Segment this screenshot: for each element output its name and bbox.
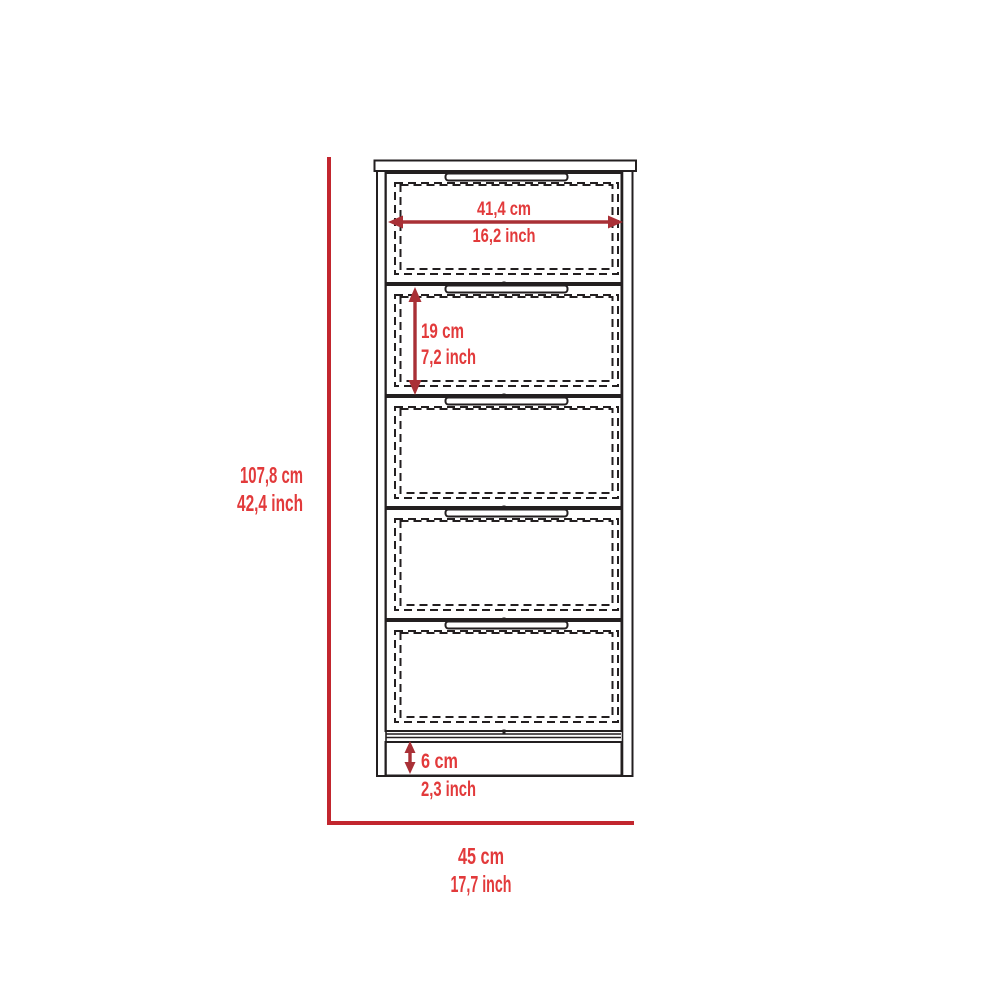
drawer-width-inch-label: 16,2 inch	[473, 226, 536, 247]
drawer-1-handle	[446, 174, 568, 181]
cabinet-top-board	[375, 161, 637, 172]
drawer-4-dashed-inner	[401, 521, 613, 605]
drawer-5-handle	[446, 622, 568, 629]
drawer-4-handle	[446, 510, 568, 517]
total-height-inch-label: 42,4 inch	[237, 490, 303, 516]
drawer-5	[386, 621, 622, 731]
drawer-height-inch-label: 7,2 inch	[421, 346, 476, 369]
drawer-3	[386, 397, 622, 507]
drawer-width-cm-label: 41,4 cm	[477, 199, 531, 220]
drawer-width-arrow-left-icon	[388, 216, 403, 229]
drawer-4-front	[386, 509, 622, 619]
drawer-height-arrow-bottom-icon	[409, 380, 422, 395]
dim-extent-lines	[327, 157, 634, 825]
dimension-diagram-page: 41,4 cm 16,2 inch 19 cm 7,2 inch 107,8 c…	[0, 0, 1000, 1000]
base-height-arrow-bottom-icon	[405, 762, 416, 774]
drawer-2-handle	[446, 286, 568, 293]
total-width-cm-label: 45 cm	[458, 843, 504, 869]
drawer-5-dashed-inner	[401, 633, 613, 717]
dim-total-height: 107,8 cm 42,4 inch	[237, 462, 303, 516]
dim-drawer-height: 19 cm 7,2 inch	[409, 287, 477, 395]
drawer-height-cm-label: 19 cm	[421, 320, 464, 343]
drawer-3-dashed-outer	[395, 407, 618, 498]
base-height-inch-label: 2,3 inch	[421, 778, 476, 801]
base-height-cm-label: 6 cm	[421, 750, 458, 773]
total-height-cm-label: 107,8 cm	[240, 462, 303, 488]
dim-drawer-width: 41,4 cm 16,2 inch	[388, 199, 623, 247]
drawer-3-dashed-inner	[401, 409, 613, 493]
drawer-3-front	[386, 397, 622, 507]
drawer-4-dashed-outer	[395, 519, 618, 610]
cabinet-outline	[375, 161, 637, 777]
drawer-4	[386, 509, 622, 619]
drawer-5-front	[386, 621, 622, 731]
cabinet-body	[377, 171, 633, 777]
drawer-3-handle	[446, 398, 568, 405]
drawer-5-dashed-outer	[395, 631, 618, 722]
dim-base-height: 6 cm 2,3 inch	[405, 741, 477, 801]
dim-total-width: 45 cm 17,7 inch	[451, 843, 512, 897]
total-width-inch-label: 17,7 inch	[451, 871, 512, 897]
drawer-gap-ticks	[503, 282, 506, 735]
furniture-dimension-diagram: 41,4 cm 16,2 inch 19 cm 7,2 inch 107,8 c…	[0, 0, 1000, 1000]
